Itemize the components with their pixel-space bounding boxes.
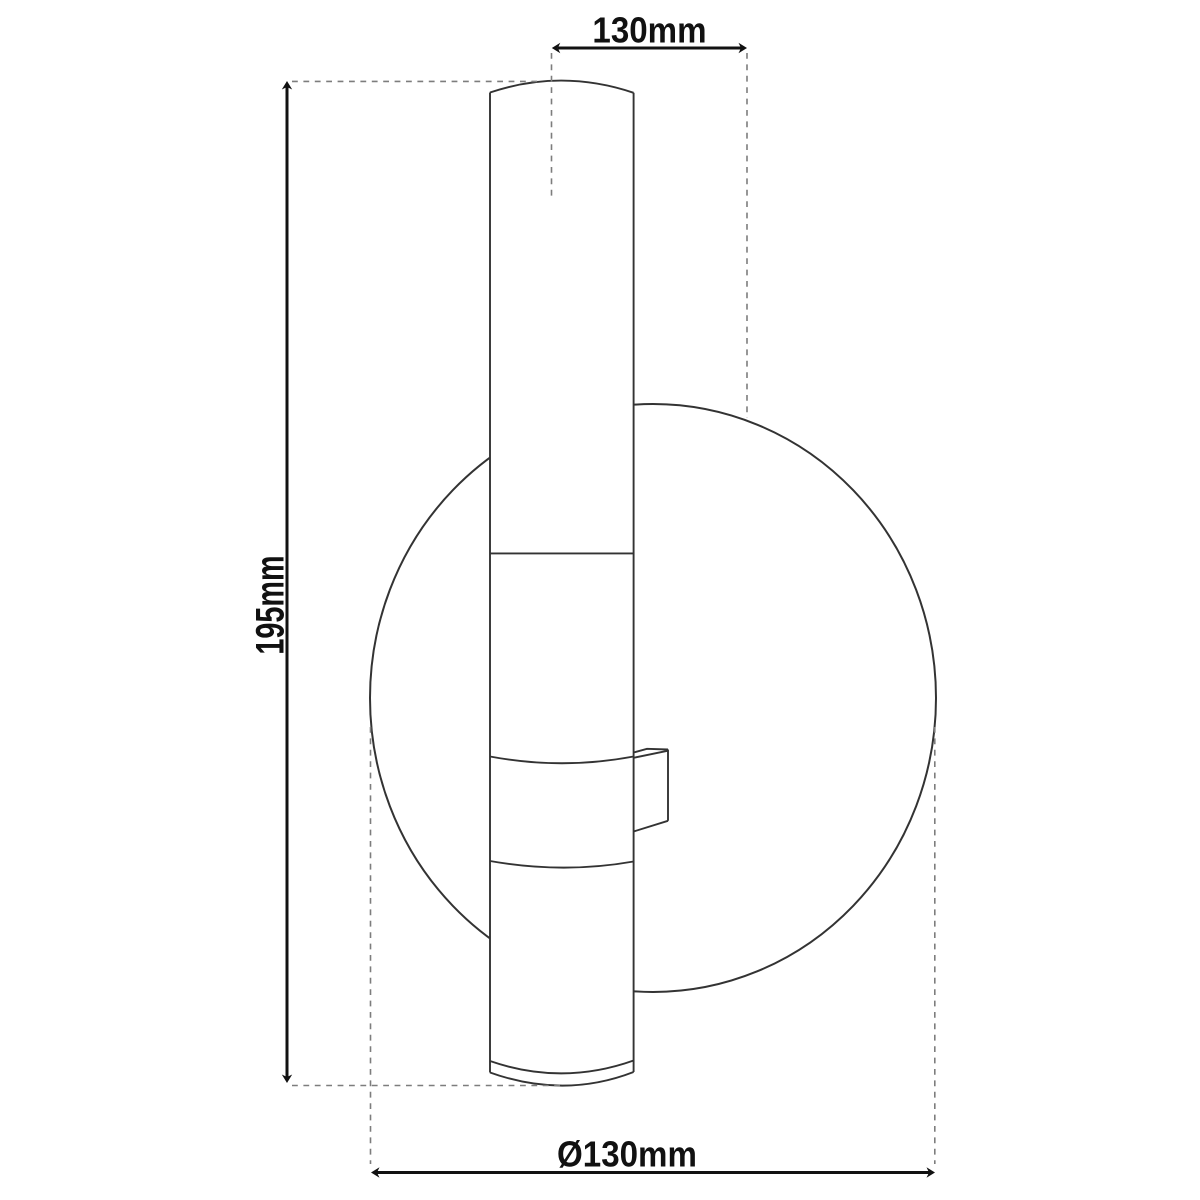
svg-text:130mm: 130mm xyxy=(592,11,706,51)
svg-text:Ø130mm: Ø130mm xyxy=(557,1135,697,1175)
svg-text:195mm: 195mm xyxy=(248,555,293,654)
